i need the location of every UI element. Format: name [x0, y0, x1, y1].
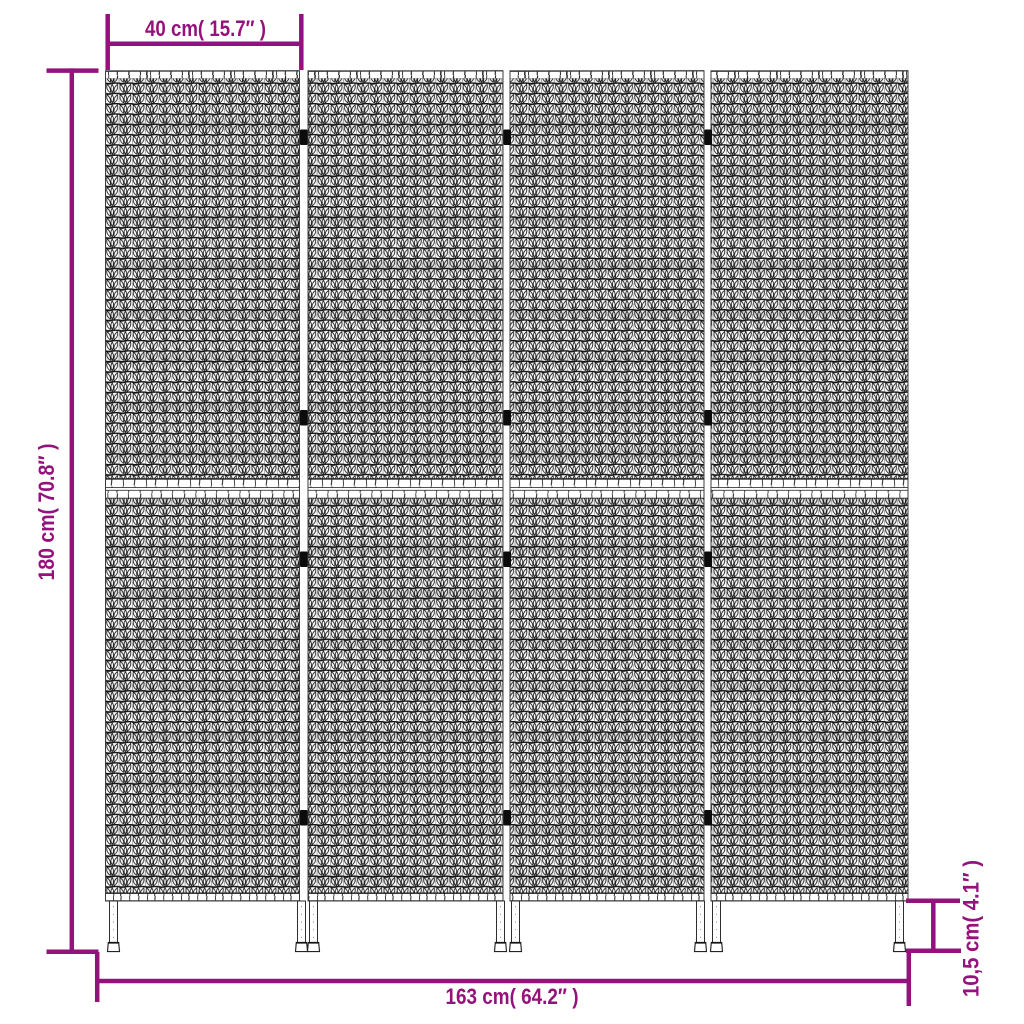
svg-text:40 cm( 15.7″ ): 40 cm( 15.7″ ) [145, 16, 266, 41]
svg-text:10,5 cm( 4.1″ ): 10,5 cm( 4.1″ ) [959, 860, 984, 997]
svg-text:180 cm( 70.8″ ): 180 cm( 70.8″ ) [34, 444, 59, 581]
svg-text:163 cm( 64.2″ ): 163 cm( 64.2″ ) [446, 984, 579, 1009]
